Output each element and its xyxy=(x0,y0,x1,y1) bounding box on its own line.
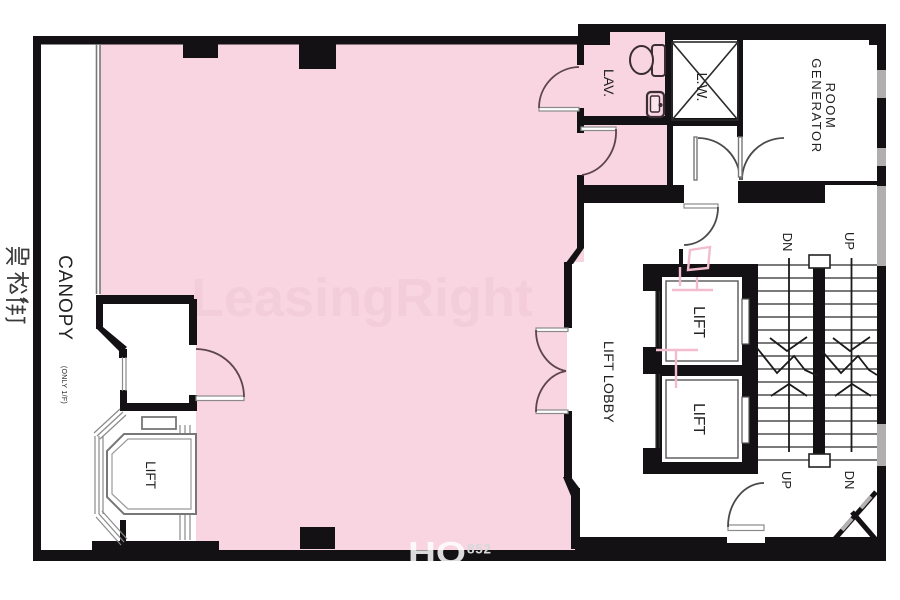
svg-text:LeasingRight: LeasingRight xyxy=(191,268,533,328)
svg-text:LAV.: LAV. xyxy=(601,69,617,97)
svg-text:GENERATOR: GENERATOR xyxy=(809,58,824,154)
svg-text:LIFT: LIFT xyxy=(143,461,158,489)
svg-text:DN: DN xyxy=(842,471,857,490)
svg-text:LIFT LOBBY: LIFT LOBBY xyxy=(601,341,617,423)
svg-text:UP: UP xyxy=(779,471,794,489)
svg-text:(ONLY 1/F): (ONLY 1/F) xyxy=(60,366,67,404)
svg-text:CANOPY: CANOPY xyxy=(54,255,75,341)
svg-text:ROOM: ROOM xyxy=(823,83,838,130)
svg-text:HQ: HQ xyxy=(408,535,466,570)
svg-text:UP: UP xyxy=(842,232,857,250)
svg-text:L.W.: L.W. xyxy=(693,72,709,101)
svg-text:DN: DN xyxy=(780,233,795,252)
svg-text:852: 852 xyxy=(467,542,491,557)
svg-text:LIFT: LIFT xyxy=(690,403,707,435)
svg-text:LIFT: LIFT xyxy=(690,306,707,338)
